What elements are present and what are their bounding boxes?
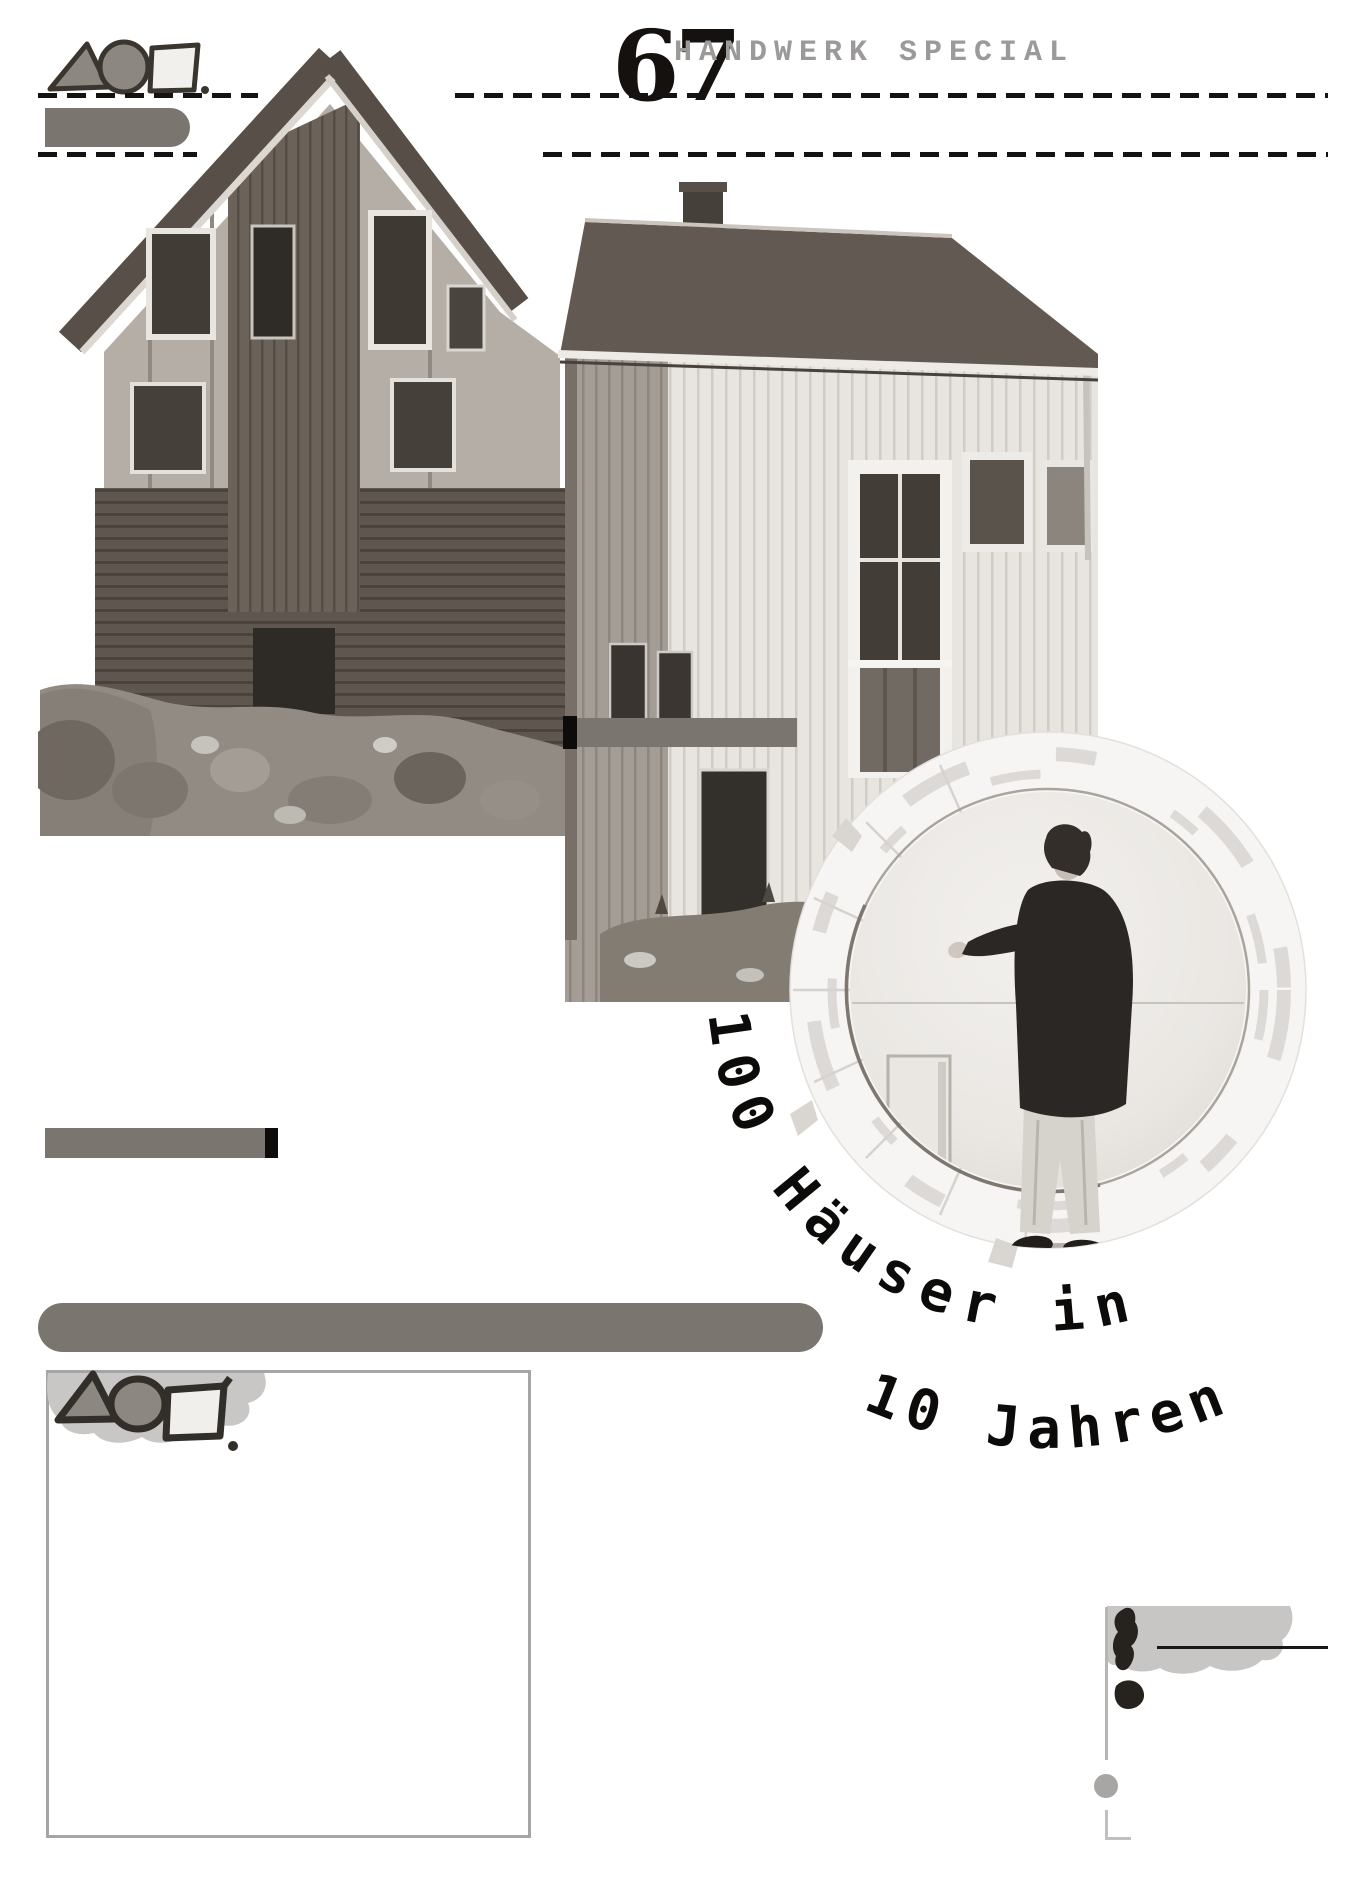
bottom-right-marks bbox=[1106, 1606, 1293, 1709]
gray-rounded-bar-wide bbox=[38, 1303, 823, 1352]
dashed-rule-second-left bbox=[38, 152, 197, 157]
square-icon bbox=[166, 1386, 224, 1438]
black-square-marker bbox=[563, 716, 577, 749]
black-square-marker bbox=[265, 1128, 278, 1158]
gray-bar-left bbox=[45, 1128, 278, 1158]
black-rule-bottom-right bbox=[1157, 1646, 1328, 1649]
corner-mark-vertical bbox=[1105, 1810, 1108, 1840]
magazine-page: 67 HANDWERK SPECIAL bbox=[0, 0, 1372, 1886]
page-artwork: 100 Häuser in 10 Jahren bbox=[0, 0, 1372, 1886]
circle-icon bbox=[111, 1379, 165, 1429]
roof bbox=[560, 222, 1098, 372]
circle-icon bbox=[100, 42, 148, 92]
dashed-rule-second-right bbox=[543, 152, 1328, 157]
gray-dot bbox=[1094, 1774, 1118, 1798]
dashed-rule-top-right bbox=[455, 93, 1328, 98]
dot-icon bbox=[228, 1441, 238, 1451]
thin-vertical-rule bbox=[1105, 1607, 1108, 1760]
corner-mark-horizontal bbox=[1105, 1837, 1131, 1840]
dashed-rule-top-left bbox=[38, 93, 258, 98]
logo-mark-box bbox=[47, 1373, 266, 1451]
square-icon bbox=[150, 45, 198, 91]
gray-bar-on-photo bbox=[563, 716, 797, 749]
logo-mark-top bbox=[50, 42, 209, 94]
portrait-photo bbox=[790, 732, 1306, 1268]
arc-text-line2: 10 Jahren bbox=[857, 1361, 1241, 1462]
